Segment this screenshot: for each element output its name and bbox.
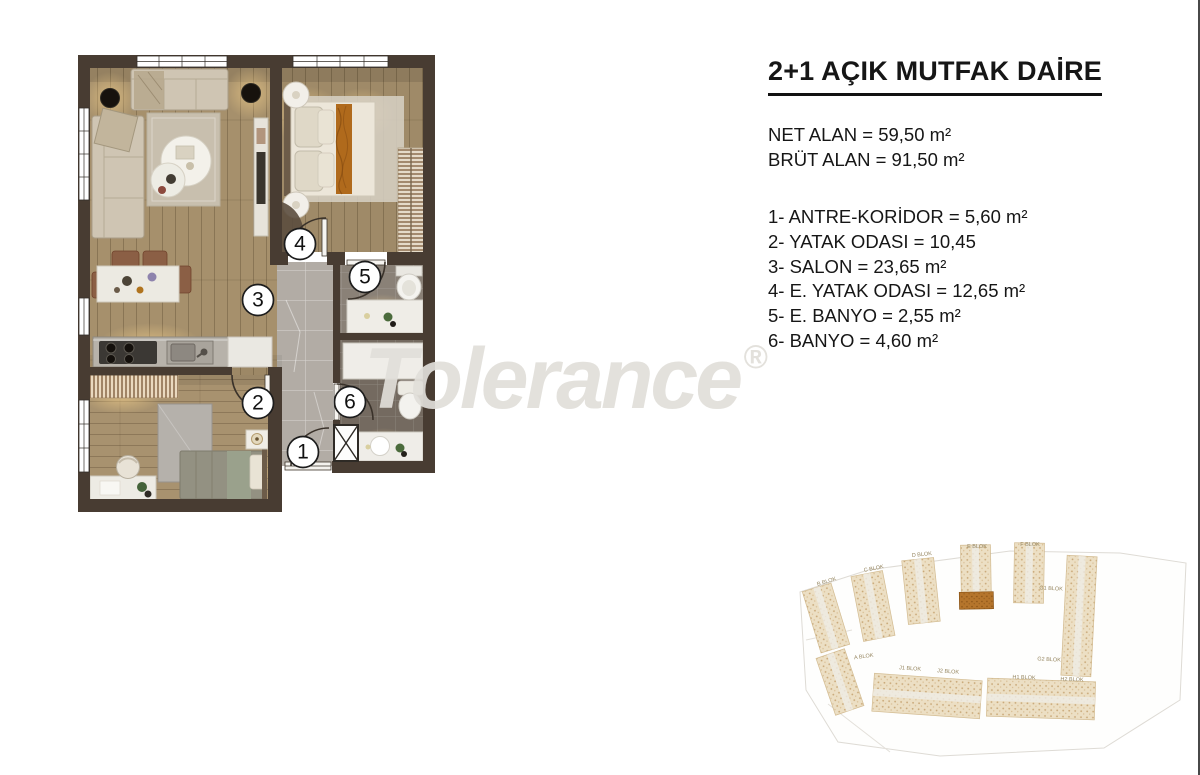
highlighted-unit xyxy=(959,592,993,610)
site-block-f xyxy=(1013,543,1044,604)
room-list-item: 4- E. YATAK ODASI = 12,65 m² xyxy=(768,279,1192,304)
room-number-4: 4 xyxy=(294,233,306,256)
kitchen-counter xyxy=(93,337,272,367)
registered-trademark-icon: ® xyxy=(743,338,767,375)
room-number-badge: 3 xyxy=(243,285,274,316)
dining-chair xyxy=(112,251,139,268)
room-number-badge: 6 xyxy=(335,387,366,418)
room-list-item: 1- ANTRE-KORİDOR = 5,60 m² xyxy=(768,205,1192,230)
block-label-h2: H2 BLOK xyxy=(1060,677,1084,684)
plan-title: 2+1 AÇIK MUTFAK DAİRE xyxy=(768,56,1102,96)
room-number-1: 1 xyxy=(297,441,309,464)
sink xyxy=(371,437,390,456)
floor-plan: 1 2 3 4 5 6 xyxy=(78,55,435,512)
sofa-left xyxy=(92,108,144,238)
area-summary: NET ALAN = 59,50 m² BRÜT ALAN = 91,50 m² xyxy=(768,122,1192,172)
page: { "info_panel": { "title": "2+1 AÇIK MUT… xyxy=(0,0,1200,775)
room-number-3: 3 xyxy=(252,289,264,312)
room-list-item: 6- BANYO = 4,60 m² xyxy=(768,329,1192,354)
info-panel: 2+1 AÇIK MUTFAK DAİRE NET ALAN = 59,50 m… xyxy=(768,56,1192,354)
kitchen-cabinet xyxy=(228,337,272,367)
single-bed xyxy=(180,449,267,501)
block-label-f: F BLOK xyxy=(1020,542,1040,548)
room-number-badge: 1 xyxy=(288,437,319,468)
wardrobe xyxy=(398,148,424,260)
room-number-badge: 5 xyxy=(350,262,381,293)
window xyxy=(293,56,388,67)
tolerance-watermark: Tolerance® xyxy=(364,336,767,422)
window xyxy=(137,56,227,67)
room-number-2: 2 xyxy=(252,392,264,415)
room-list-item: 5- E. BANYO = 2,55 m² xyxy=(768,304,1192,329)
room-number-badge: 4 xyxy=(285,229,316,260)
dining-chair xyxy=(143,251,167,268)
room-number-5: 5 xyxy=(359,266,371,289)
tv-console xyxy=(254,118,268,236)
window xyxy=(79,400,89,472)
site-plan: B BLOK C BLOK D BLOK E BLOK F BLOK G1 BL… xyxy=(800,542,1186,756)
gross-area: BRÜT ALAN = 91,50 m² xyxy=(768,147,1192,172)
master-bed xyxy=(283,82,404,218)
dining-table xyxy=(97,266,179,302)
net-area: NET ALAN = 59,50 m² xyxy=(768,122,1192,147)
block-label-e: E BLOK xyxy=(967,544,987,550)
site-block-h xyxy=(986,678,1095,720)
room-number-badge: 2 xyxy=(243,388,274,419)
site-block-d xyxy=(902,558,941,625)
room-number-6: 6 xyxy=(344,391,356,414)
block-label-g1: G1 BLOK xyxy=(1039,585,1063,592)
block-label-h1: H1 BLOK xyxy=(1012,675,1036,682)
site-block-j xyxy=(872,673,982,718)
window xyxy=(79,108,89,200)
room-list-item: 2- YATAK ODASI = 10,45 xyxy=(768,230,1192,255)
site-block-e-highlighted xyxy=(958,545,993,610)
sofa-top xyxy=(131,69,228,110)
window xyxy=(79,298,89,335)
bedside-table xyxy=(246,430,268,449)
installation-shaft xyxy=(334,425,358,461)
watermark-text: Tolerance xyxy=(364,331,740,427)
block-label-g2: G2 BLOK xyxy=(1037,656,1061,663)
room-list: 1- ANTRE-KORİDOR = 5,60 m² 2- YATAK ODAS… xyxy=(768,205,1192,354)
clothes-rack xyxy=(88,372,178,398)
site-block-g xyxy=(1061,555,1097,676)
room-list-item: 3- SALON = 23,65 m² xyxy=(768,255,1192,280)
